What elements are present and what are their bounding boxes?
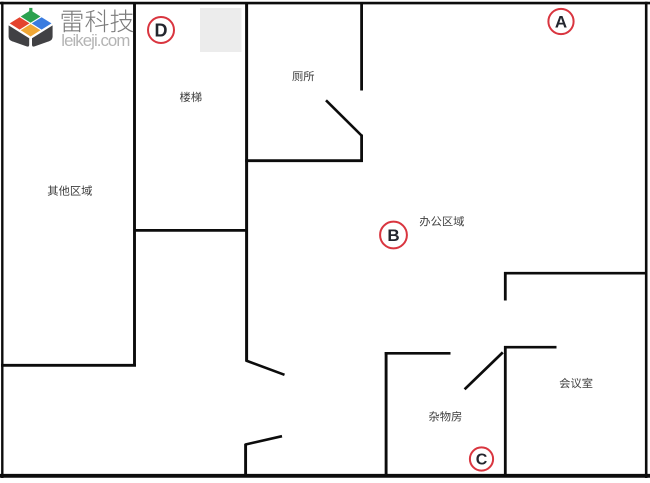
svg-text:leikeji.com: leikeji.com — [61, 31, 130, 50]
svg-text:D: D — [155, 20, 168, 40]
svg-text:C: C — [476, 452, 488, 469]
svg-text:A: A — [555, 13, 567, 32]
svg-text:B: B — [387, 226, 399, 245]
